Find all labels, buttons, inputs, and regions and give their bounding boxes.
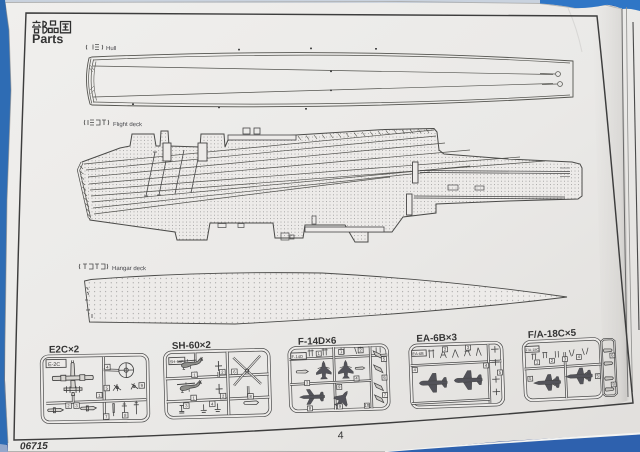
svg-text:F-14D: F-14D — [292, 354, 304, 359]
svg-text:F/A-18C: F/A-18C — [526, 348, 540, 353]
svg-text:E-2C: E-2C — [48, 362, 60, 368]
svg-text:Flight deck: Flight deck — [113, 122, 143, 128]
svg-text:Hangar deck: Hangar deck — [112, 266, 147, 272]
svg-text:E2C×2: E2C×2 — [49, 344, 80, 356]
svg-text:Hull: Hull — [106, 46, 116, 52]
svg-text:06715: 06715 — [20, 441, 48, 452]
svg-text:4: 4 — [338, 430, 344, 442]
svg-text:EA-6B: EA-6B — [412, 351, 424, 356]
svg-text:Parts: Parts — [32, 32, 63, 46]
svg-text:10: 10 — [364, 403, 369, 408]
